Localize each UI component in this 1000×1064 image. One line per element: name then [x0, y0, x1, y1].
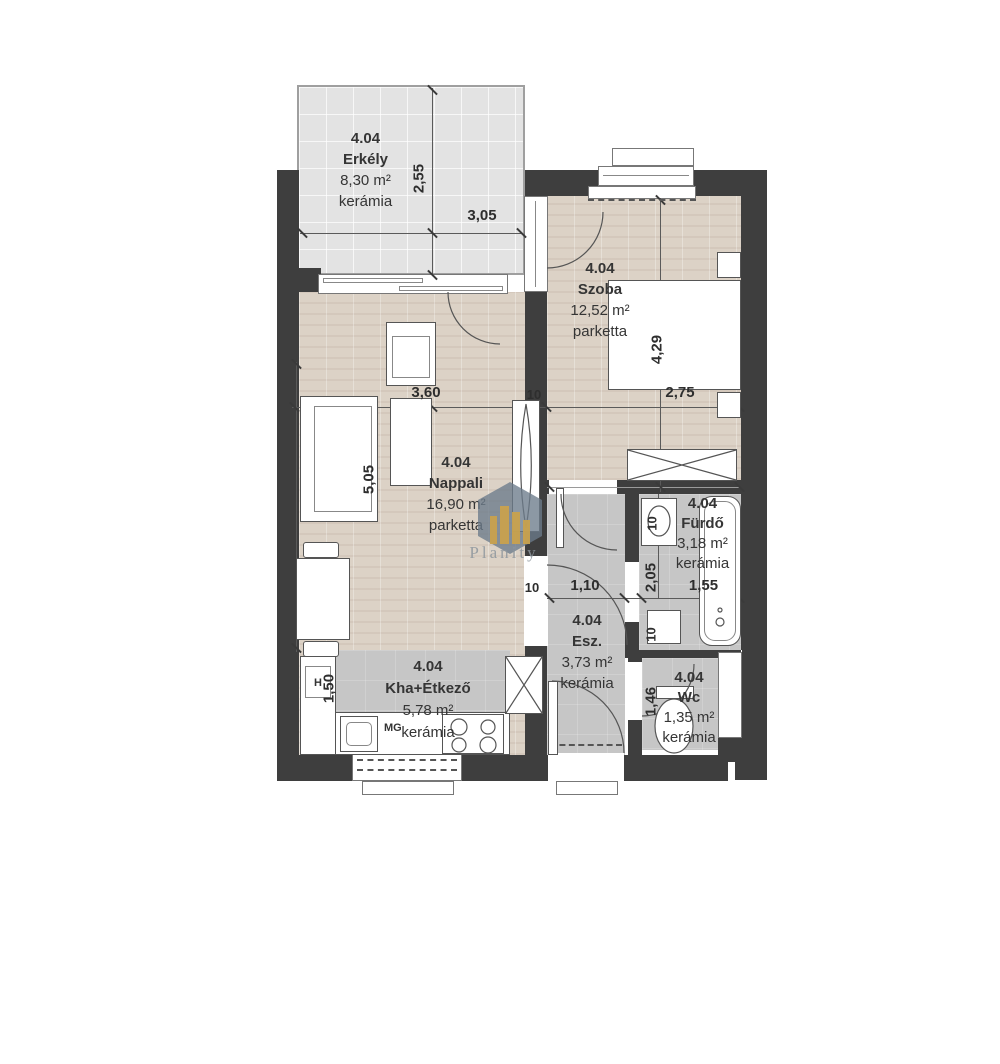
room-label-hall: 4.04 Esz. 3,73 m² kerámia	[546, 610, 628, 694]
room-name: Esz.	[546, 631, 628, 652]
dining-chair-bottom	[303, 641, 339, 657]
dim-wall-a: 10	[522, 387, 546, 402]
room-area: 12,52 m²	[545, 300, 655, 321]
dim-livingroom-height: 5,05	[361, 455, 378, 505]
sliding-panel-1	[323, 278, 423, 283]
kitchen-window-sill	[362, 781, 454, 795]
wall-corner-step	[735, 760, 767, 780]
dim-wall-d: 10	[644, 622, 659, 648]
wall-bottom-b	[460, 755, 550, 781]
room-floor-type: kerámia	[358, 722, 498, 744]
dim-wall-b: 10	[520, 580, 544, 595]
room-floor-type: kerámia	[546, 673, 628, 694]
kitchen-window-dash-2	[357, 769, 457, 771]
nightstand-bottom	[717, 392, 741, 418]
room-area: 5,78 m²	[358, 700, 498, 722]
sliding-panel-2	[399, 286, 503, 291]
watermark-brand: Planity	[462, 543, 546, 563]
bedroom-hall-door-leaf	[556, 488, 564, 548]
dimline-bedroom-horizontal	[547, 487, 741, 488]
wc-door-opening	[628, 662, 642, 720]
room-floor-type: kerámia	[643, 728, 735, 748]
room-label-bathroom: 4.04 Fürdő 3,18 m² kerámia	[655, 494, 750, 574]
entrance-threshold-dash	[550, 744, 622, 746]
dining-table	[296, 558, 350, 640]
entrance-doorstep	[556, 781, 618, 795]
dim-balcony-width: 3,05	[452, 207, 512, 224]
room-label-wc: 4.04 Wc 1,35 m² kerámia	[643, 668, 735, 748]
room-name: Fürdő	[655, 514, 750, 534]
room-area: 3,18 m²	[655, 534, 750, 554]
bedroom-window-sill	[612, 148, 694, 166]
room-area: 1,35 m²	[643, 708, 735, 728]
wall-bathroom-left-upper	[625, 494, 639, 562]
bedroom-balcony-door-line	[535, 201, 536, 287]
bedroom-window-mullion	[603, 175, 689, 176]
logo-building	[500, 506, 509, 544]
room-id: 4.04	[643, 668, 735, 688]
nightstand-top	[717, 252, 741, 278]
room-name: Kha+Étkező	[358, 678, 498, 700]
bedroom-window-dashline	[588, 199, 696, 201]
wall-right-lower	[742, 650, 767, 738]
dim-bedroom-width: 2,75	[650, 384, 710, 401]
room-id: 4.04	[546, 610, 628, 631]
wall-bottom-a	[277, 755, 354, 781]
logo-building	[523, 520, 530, 544]
room-floor-type: kerámia	[308, 191, 423, 212]
logo-building	[512, 512, 520, 544]
armchair	[386, 322, 436, 386]
room-name: Wc	[643, 688, 735, 708]
hall-door-opening	[524, 556, 548, 646]
room-id: 4.04	[400, 452, 512, 473]
wardrobe	[627, 449, 737, 481]
entrance-door-opening	[548, 753, 624, 781]
bedroom-window-frame	[588, 186, 696, 199]
armchair-seat	[392, 336, 430, 378]
room-label-bedroom: 4.04 Szoba 12,52 m² parketta	[545, 258, 655, 342]
dim-livingroom-width: 3,60	[396, 384, 456, 401]
wall-bottom-c	[622, 755, 728, 781]
kitchen-window-dash-1	[357, 759, 457, 761]
room-id: 4.04	[358, 656, 498, 678]
dim-kitchen-depth: 1,50	[321, 664, 338, 714]
room-name: Szoba	[545, 279, 655, 300]
logo-building	[490, 516, 497, 544]
room-id: 4.04	[308, 128, 423, 149]
kitchen-window	[352, 753, 462, 781]
room-label-kitchen: 4.04 Kha+Étkező 5,78 m² kerámia	[358, 656, 498, 744]
room-floor-type: kerámia	[655, 554, 750, 574]
dimline-balcony-vertical	[432, 88, 433, 275]
dining-chair-top	[303, 542, 339, 558]
dim-hall-width: 1,10	[560, 577, 610, 594]
room-id: 4.04	[655, 494, 750, 514]
bedroom-window	[598, 166, 694, 186]
room-id: 4.04	[545, 258, 655, 279]
dim-bathroom-width: 1,55	[676, 577, 731, 594]
living-room-balcony-door	[318, 274, 508, 294]
room-area: 8,30 m²	[308, 170, 423, 191]
room-area: 3,73 m²	[546, 652, 628, 673]
dimline-balcony-horizontal	[300, 233, 523, 234]
room-name: Erkély	[308, 149, 423, 170]
floor-plan: H 2,55 3,05 3,60 10 2,75 4,29 5,05 1,10 …	[0, 0, 1000, 1064]
room-floor-type: parketta	[545, 321, 655, 342]
fridge	[505, 656, 543, 714]
room-label-balcony: 4.04 Erkély 8,30 m² kerámia	[308, 128, 423, 212]
